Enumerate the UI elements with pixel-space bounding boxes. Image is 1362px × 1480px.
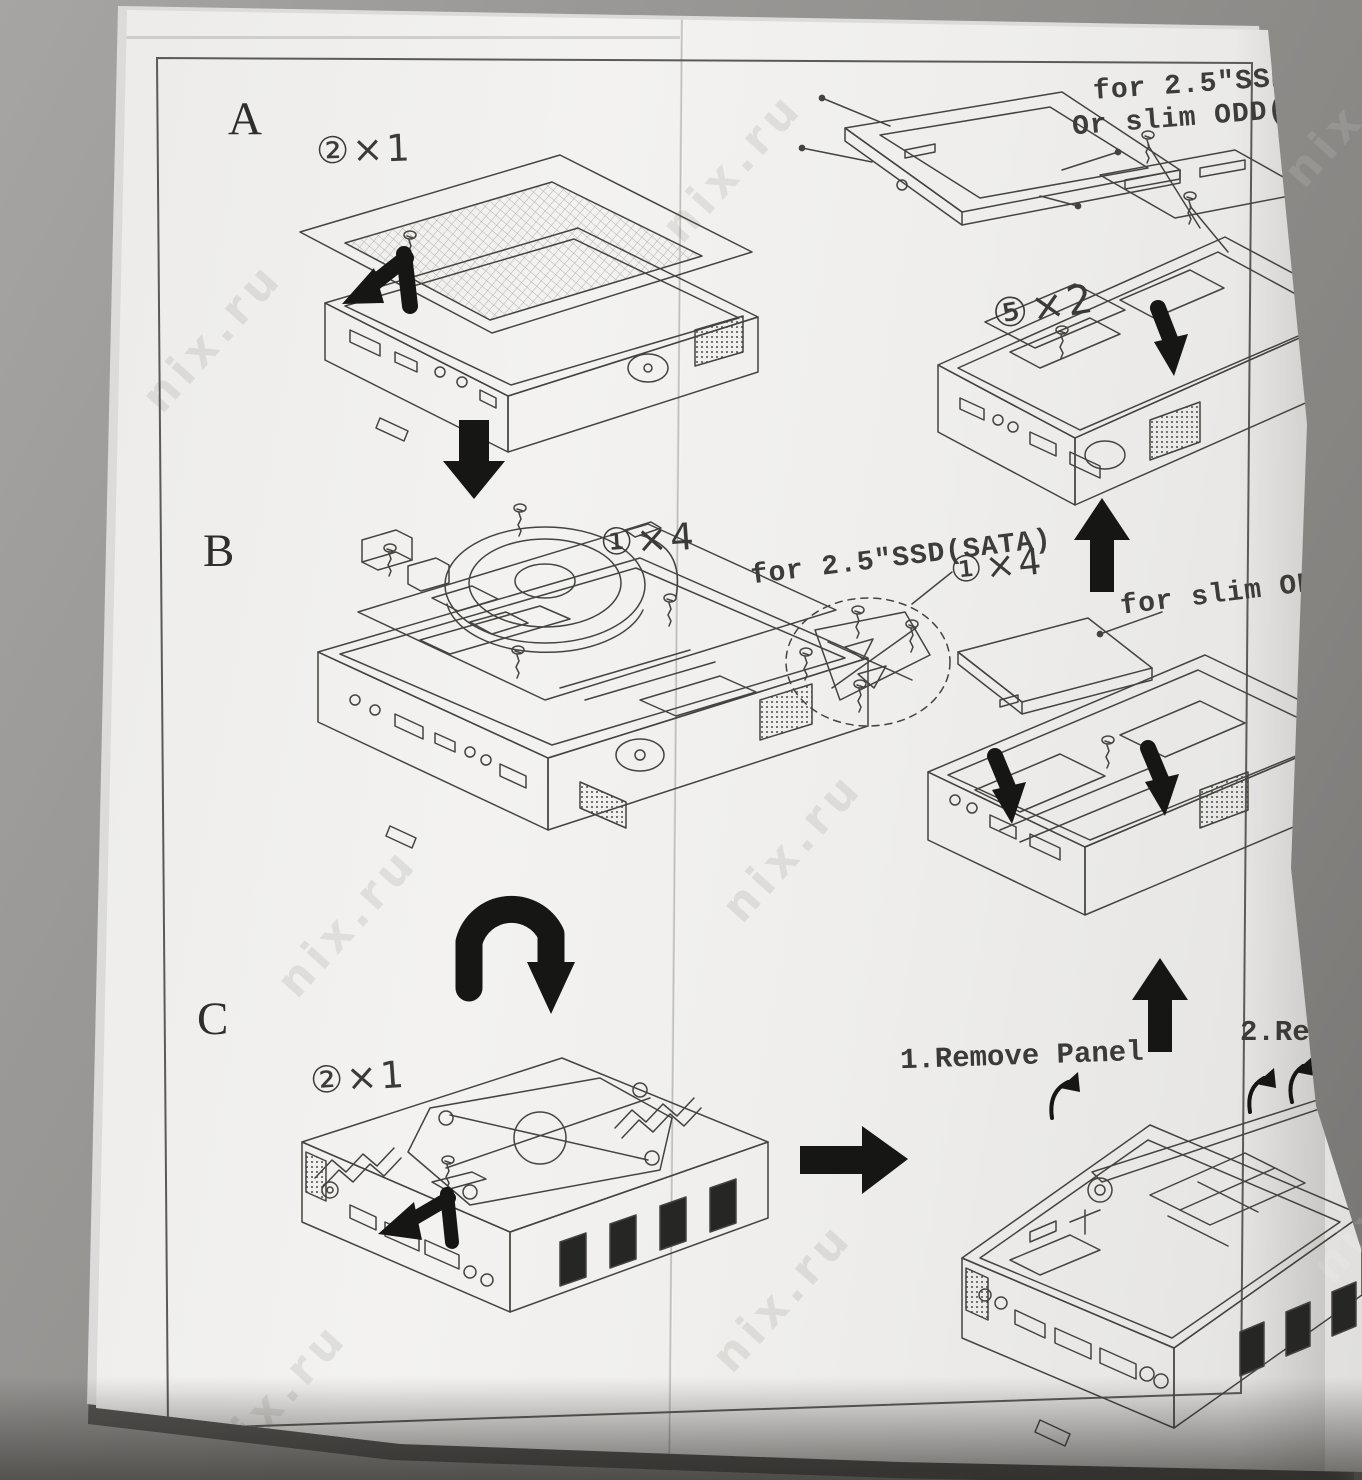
watermark: nix.ru — [1273, 25, 1362, 197]
arrow-uturn-b-to-c — [469, 909, 575, 1014]
photo-scene: A ②×1 B ①×4 C ②×1 for 2.5″SSD Or slim OD… — [0, 0, 1362, 1480]
section-b-label: B — [203, 524, 234, 578]
section-a-label: A — [228, 92, 262, 146]
instruction-sheet: A ②×1 B ①×4 C ②×1 for 2.5″SSD Or slim OD… — [0, 0, 1362, 1480]
section-c-qty: ②×1 — [309, 1053, 408, 1103]
step-2-label: 2.Re — [1240, 1016, 1310, 1049]
section-c-label: C — [197, 992, 228, 1046]
diagram-step-a — [300, 155, 758, 452]
diagram-step-b — [318, 504, 868, 848]
diagram-ssd-bracket — [786, 572, 1162, 768]
bend-arrow-a — [342, 254, 410, 306]
diagram-chassis-top-right — [938, 237, 1362, 505]
diagram-remove-panel — [962, 1056, 1362, 1446]
page-border-frame — [157, 58, 1252, 1429]
arrow-up-middle-to-top — [1074, 498, 1130, 592]
section-b-qty: ①×4 — [599, 515, 698, 565]
flip-arrow-2 — [1249, 1068, 1276, 1112]
arrow-down-a-to-b — [443, 420, 505, 499]
insert-arrow-top-right — [1154, 308, 1188, 376]
flip-arrow-3 — [1290, 1056, 1315, 1102]
flip-arrow-1 — [1051, 1072, 1080, 1118]
diagram-chassis-middle-right — [928, 655, 1362, 915]
section-a-qty: ②×1 — [315, 126, 413, 172]
arrow-right-c-to-panel — [800, 1126, 908, 1194]
bend-arrow-c — [378, 1194, 452, 1242]
diagram-art — [0, 0, 1362, 1480]
insert-arrow-left-bay — [992, 756, 1026, 824]
